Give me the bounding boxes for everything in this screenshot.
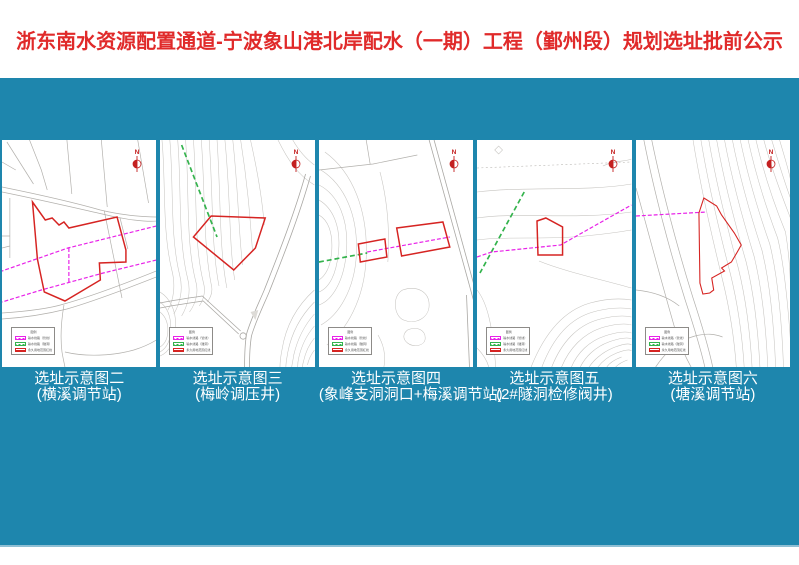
pipeline-route-magenta	[477, 205, 631, 257]
legend-title: 图例	[490, 330, 527, 334]
caption-line1: 选址示意图二	[2, 371, 156, 387]
map-legend: 图例 输水线路（管线） 输水线路（隧洞） 永久用地范围红线	[486, 327, 530, 355]
teal-background-band: N 图例 输水线路（管线） 输水线路（隧洞） 永久用地范围红线 选址示意图二 (…	[0, 78, 799, 547]
panel-caption: 选址示意图四 (象峰支洞洞口+梅溪调节站)	[319, 371, 473, 403]
caption-line2: (2#隧洞检修阀井)	[477, 387, 631, 403]
legend-swatch-pipeline	[332, 336, 343, 340]
legend-item: 输水线路（管线）	[490, 336, 527, 340]
legend-item: 输水线路（管线）	[332, 336, 369, 340]
north-arrow-icon: N	[447, 147, 461, 174]
legend-swatch-tunnel	[490, 342, 501, 346]
panel-tunnel2-inspection-valve-shaft: N 图例 输水线路（管线） 输水线路（隧洞） 永久用地范围红线 选址示意图五 (…	[477, 140, 631, 403]
legend-swatch-tunnel	[332, 342, 343, 346]
north-arrow-icon: N	[764, 147, 778, 174]
legend-swatch-tunnel	[15, 342, 26, 346]
tunnel-route-green	[480, 192, 524, 273]
route-lines	[2, 226, 156, 302]
map-thumbnail: N 图例 输水线路（管线） 输水线路（隧洞） 永久用地范围红线	[319, 140, 473, 367]
caption-line2: (象峰支洞洞口+梅溪调节站)	[319, 387, 473, 403]
caption-line1: 选址示意图五	[477, 371, 631, 387]
contour-lines	[693, 140, 790, 367]
parcel-lines	[319, 140, 417, 170]
caption-line1: 选址示意图六	[636, 371, 790, 387]
legend-swatch-tunnel	[649, 342, 660, 346]
legend-item: 永久用地范围红线	[332, 348, 369, 352]
caption-line2: (梅岭调压井)	[160, 387, 314, 403]
legend-swatch-pipeline	[15, 336, 26, 340]
panel-xiangfeng-adit-meixi-station: N 图例 输水线路（管线） 输水线路（隧洞） 永久用地范围红线 选址示意图四 (…	[319, 140, 473, 403]
north-label: N	[135, 149, 140, 156]
legend-swatch-boundary	[490, 348, 501, 352]
north-arrow-icon: N	[606, 147, 620, 174]
panel-caption: 选址示意图五 (2#隧洞检修阀井)	[477, 371, 631, 403]
panel-meiling-surge-shaft: N 图例 输水线路（管线） 输水线路（隧洞） 永久用地范围红线 选址示意图三 (…	[160, 140, 314, 403]
map-legend: 图例 输水线路（管线） 输水线路（隧洞） 永久用地范围红线	[328, 327, 372, 355]
panel-tangxi-regulating-station: N 图例 输水线路（管线） 输水线路（隧洞） 永久用地范围红线 选址示意图六 (…	[636, 140, 790, 403]
site-boundary-polygon	[32, 202, 125, 301]
map-legend: 图例 输水线路（管线） 输水线路（隧洞） 永久用地范围红线	[11, 327, 55, 355]
legend-swatch-pipeline	[490, 336, 501, 340]
legend-item: 永久用地范围红线	[173, 348, 210, 352]
legend-title: 图例	[15, 330, 52, 334]
legend-swatch-pipeline	[173, 336, 184, 340]
site-boundary-polygon	[699, 198, 741, 294]
road-lines	[429, 140, 473, 367]
panel-caption: 选址示意图二 (横溪调节站)	[2, 371, 156, 403]
panel-caption: 选址示意图六 (塘溪调节站)	[636, 371, 790, 403]
legend-item: 输水线路（管线）	[173, 336, 210, 340]
legend-item: 输水线路（隧洞）	[332, 342, 369, 346]
caption-line1: 选址示意图四	[319, 371, 473, 387]
site-boundary-polygons	[358, 222, 449, 262]
map-thumbnail: N 图例 输水线路（管线） 输水线路（隧洞） 永久用地范围红线	[636, 140, 790, 367]
map-thumbnail: N 图例 输水线路（管线） 输水线路（隧洞） 永久用地范围红线	[477, 140, 631, 367]
panel-caption: 选址示意图三 (梅岭调压井)	[160, 371, 314, 403]
north-label: N	[610, 149, 615, 156]
legend-swatch-pipeline	[649, 336, 660, 340]
legend-swatch-tunnel	[173, 342, 184, 346]
legend-item: 输水线路（管线）	[15, 336, 52, 340]
legend-item: 输水线路（隧洞）	[649, 342, 686, 346]
site-boundary-polygon	[537, 218, 563, 255]
map-legend: 图例 输水线路（管线） 输水线路（隧洞） 永久用地范围红线	[645, 327, 689, 355]
legend-item: 输水线路（隧洞）	[15, 342, 52, 346]
map-panels-row: N 图例 输水线路（管线） 输水线路（隧洞） 永久用地范围红线 选址示意图二 (…	[2, 140, 790, 403]
legend-item: 输水线路（隧洞）	[173, 342, 210, 346]
legend-item: 输水线路（隧洞）	[490, 342, 527, 346]
legend-swatch-boundary	[332, 348, 343, 352]
legend-item: 永久用地范围红线	[15, 348, 52, 352]
north-arrow-icon: N	[130, 147, 144, 174]
legend-title: 图例	[173, 330, 210, 334]
legend-item: 永久用地范围红线	[490, 348, 527, 352]
map-legend: 图例 输水线路（管线） 输水线路（隧洞） 永久用地范围红线	[169, 327, 213, 355]
caption-line1: 选址示意图三	[160, 371, 314, 387]
legend-swatch-boundary	[649, 348, 660, 352]
north-label: N	[769, 149, 774, 156]
legend-title: 图例	[332, 330, 369, 334]
site-boundary-polygon	[194, 216, 266, 270]
north-label: N	[293, 149, 298, 156]
legend-item: 输水线路（管线）	[649, 336, 686, 340]
north-label: N	[452, 149, 457, 156]
footer-strip	[0, 547, 799, 565]
map-thumbnail: N 图例 输水线路（管线） 输水线路（隧洞） 永久用地范围红线	[160, 140, 314, 367]
legend-item: 永久用地范围红线	[649, 348, 686, 352]
page-title: 浙东南水资源配置通道-宁波象山港北岸配水（一期）工程（鄞州段）规划选址批前公示	[16, 25, 783, 54]
north-arrow-icon: N	[289, 147, 303, 174]
legend-title: 图例	[649, 330, 686, 334]
panel-hengxi-regulating-station: N 图例 输水线路（管线） 输水线路（隧洞） 永久用地范围红线 选址示意图二 (…	[2, 140, 156, 403]
map-thumbnail: N 图例 输水线路（管线） 输水线路（隧洞） 永久用地范围红线	[2, 140, 156, 367]
caption-line2: (横溪调节站)	[2, 387, 156, 403]
pipeline-route-magenta	[636, 212, 707, 216]
page-header: 浙东南水资源配置通道-宁波象山港北岸配水（一期）工程（鄞州段）规划选址批前公示	[0, 0, 799, 78]
legend-swatch-boundary	[173, 348, 184, 352]
caption-line2: (塘溪调节站)	[636, 387, 790, 403]
legend-swatch-boundary	[15, 348, 26, 352]
